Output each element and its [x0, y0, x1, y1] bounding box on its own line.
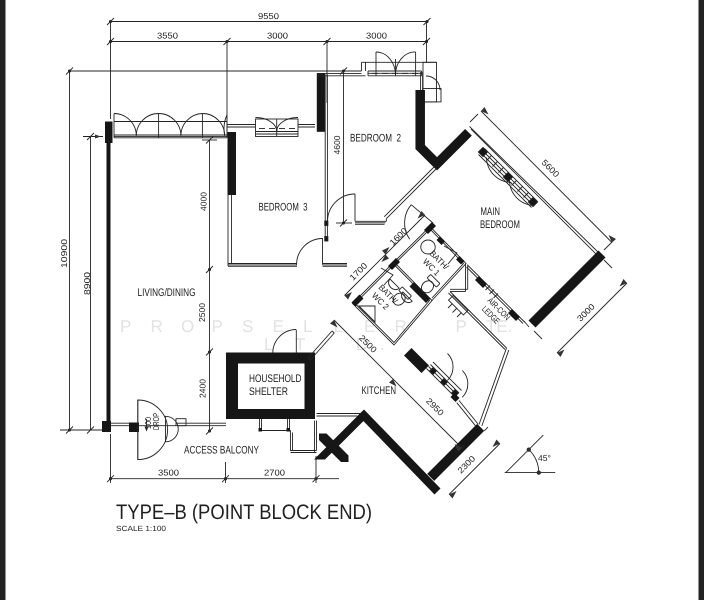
svg-text:HOUSEHOLD: HOUSEHOLD: [249, 373, 302, 385]
svg-text:9550: 9550: [258, 11, 279, 21]
svg-text:SCALE 1:100: SCALE 1:100: [116, 524, 166, 533]
svg-text:8900: 8900: [82, 272, 92, 295]
svg-text:3550: 3550: [157, 31, 178, 41]
svg-text:LIVING/DINING: LIVING/DINING: [138, 287, 196, 299]
svg-text:3500: 3500: [158, 468, 179, 478]
svg-text:BEDROOM: BEDROOM: [480, 219, 520, 231]
svg-text:10900: 10900: [59, 239, 69, 268]
svg-text:TYPE–B (POINT BLOCK END): TYPE–B (POINT BLOCK END): [116, 501, 372, 524]
svg-text:MAIN: MAIN: [481, 206, 501, 218]
svg-text:2500: 2500: [197, 303, 207, 322]
svg-text:3000: 3000: [267, 31, 288, 41]
svg-text:SHELTER: SHELTER: [249, 386, 288, 398]
svg-text:2400: 2400: [198, 379, 208, 398]
svg-text:BEDROOM 3: BEDROOM 3: [259, 202, 308, 214]
svg-text:45°: 45°: [538, 453, 551, 463]
svg-text:ACCESS BALCONY: ACCESS BALCONY: [184, 445, 259, 457]
svg-text:BEDROOM 2: BEDROOM 2: [350, 133, 401, 145]
svg-text:2700: 2700: [264, 468, 285, 478]
svg-text:4600: 4600: [332, 135, 342, 154]
svg-text:KITCHEN: KITCHEN: [362, 385, 397, 397]
svg-text:4000: 4000: [199, 192, 209, 211]
svg-text:DROP: DROP: [151, 413, 161, 430]
svg-text:3000: 3000: [366, 31, 387, 41]
